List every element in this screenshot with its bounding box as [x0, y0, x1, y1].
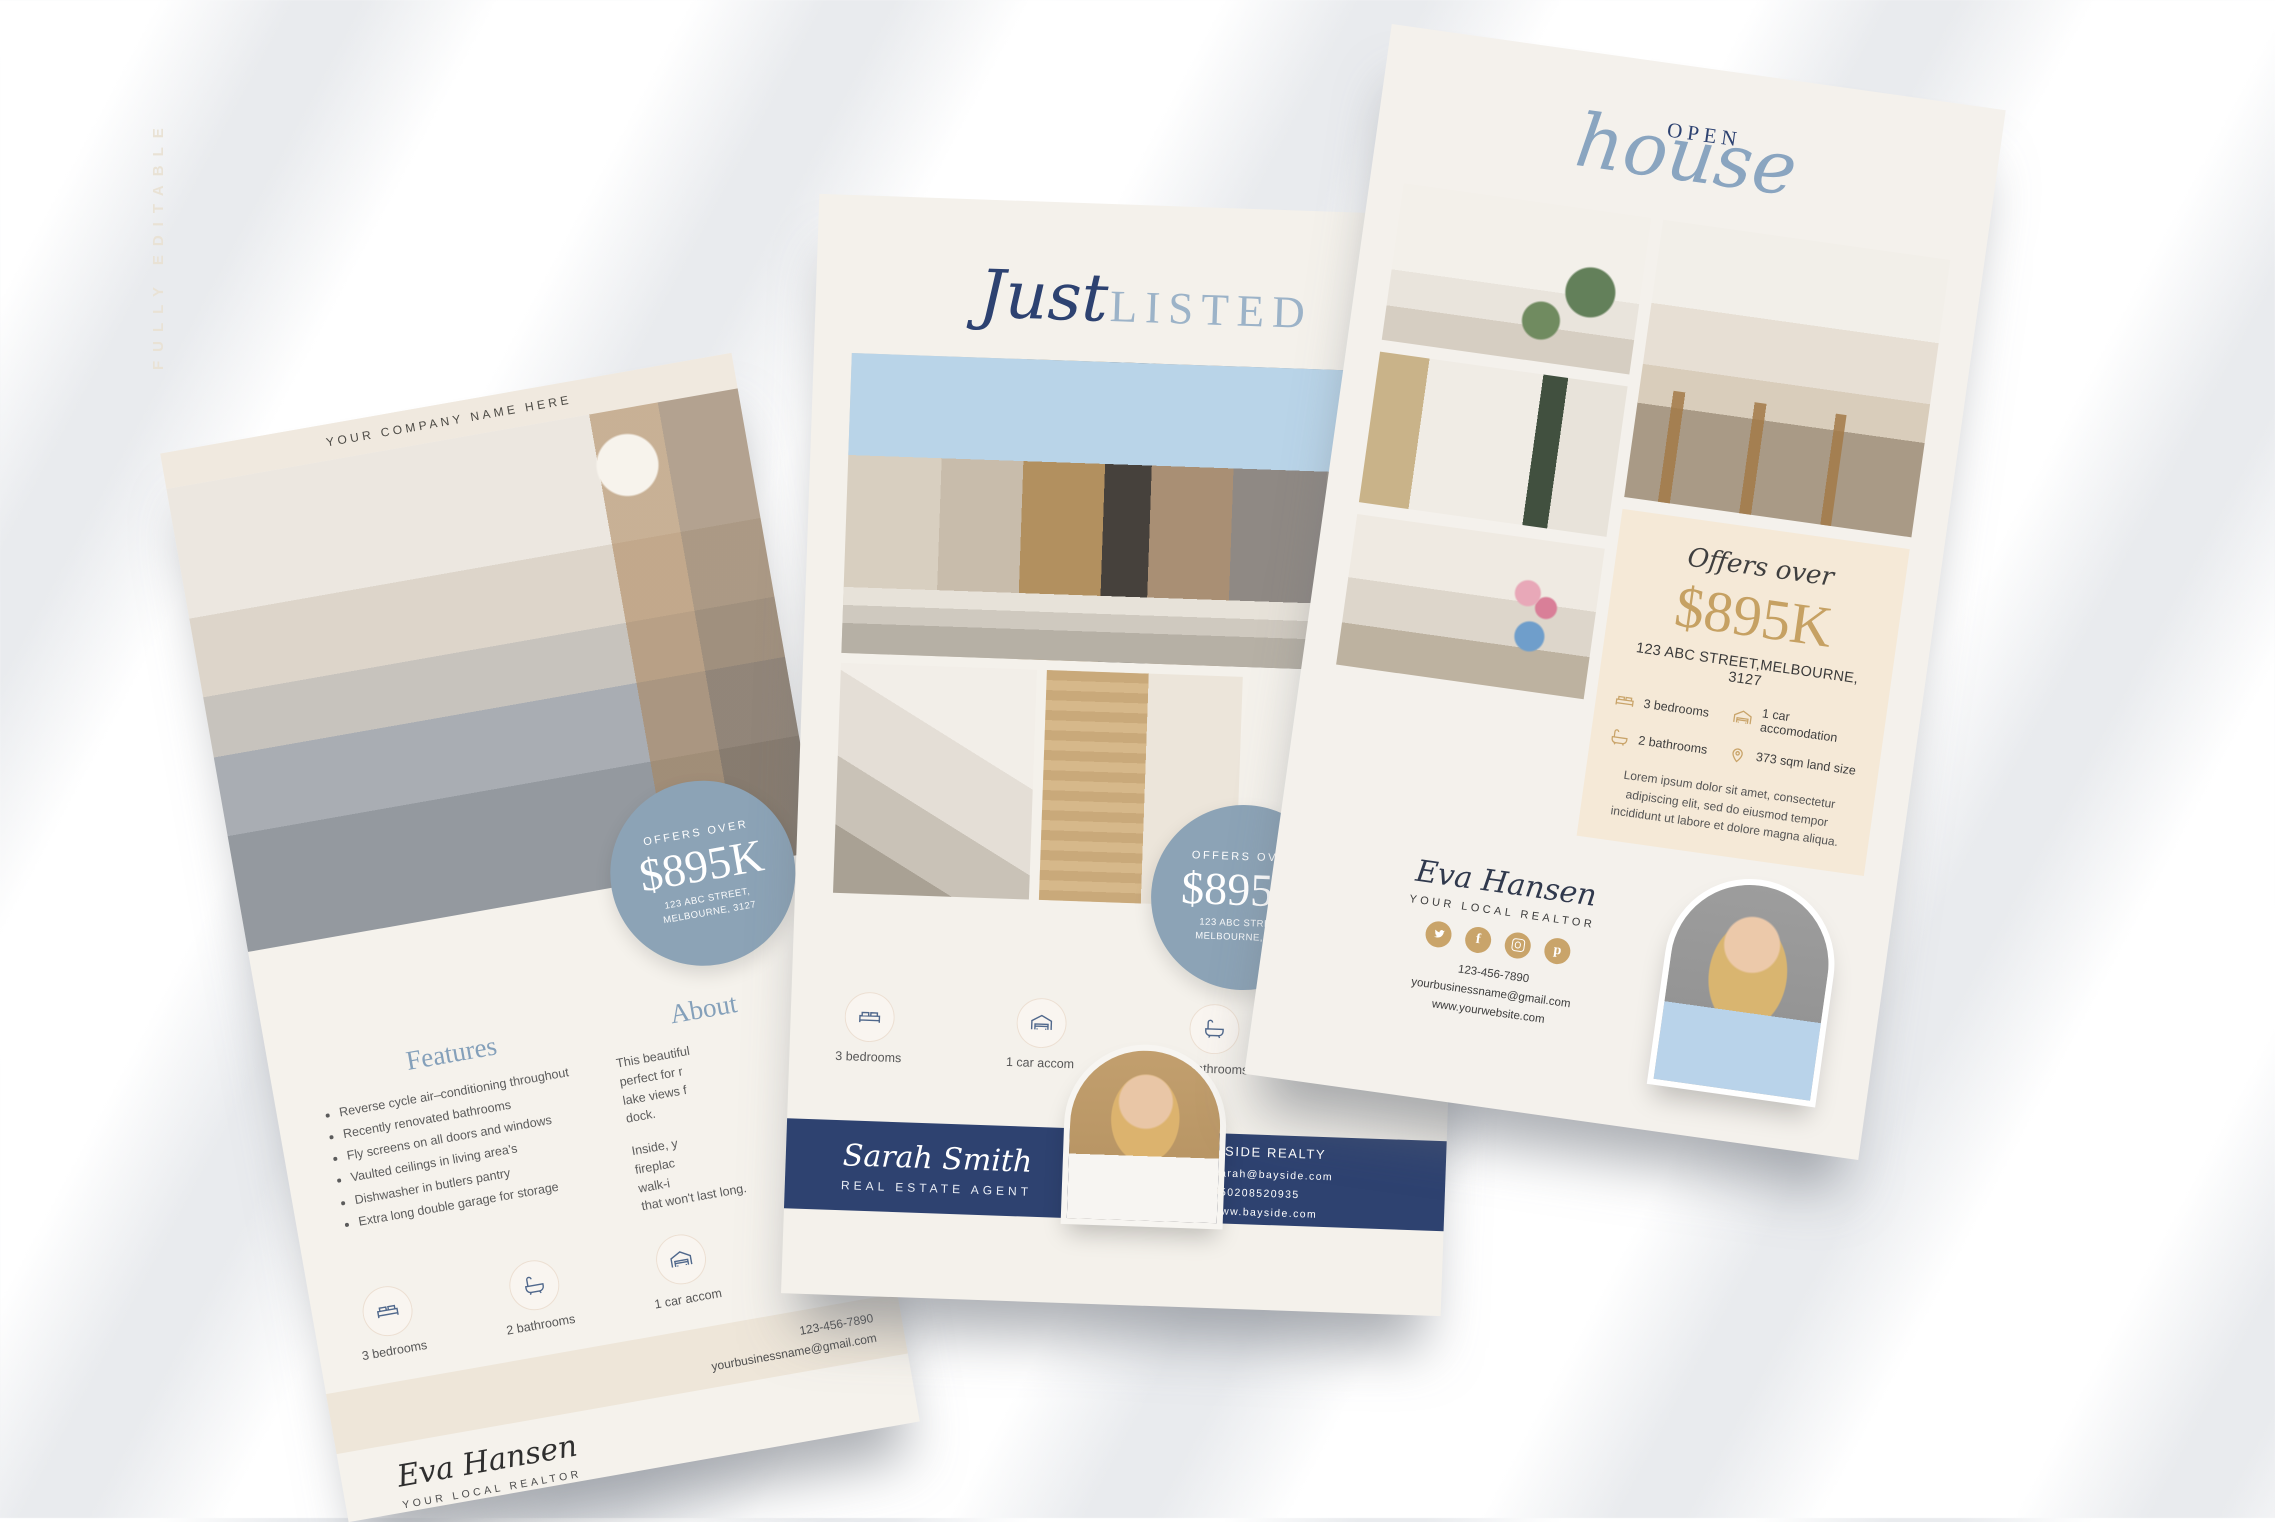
instagram-icon [1503, 931, 1532, 960]
facebook-icon: f [1463, 925, 1492, 954]
kitchen-photo [1624, 220, 1950, 538]
map-pin-icon [1725, 742, 1750, 767]
staircase-living-photo [833, 663, 1037, 900]
stage: FULLY EDITABLE YOUR COMPANY NAME HERE OF… [0, 0, 2275, 1518]
company-name: BAYSIDE REALTY [1195, 1143, 1430, 1166]
detail-bathrooms: 2 bathrooms [1607, 725, 1722, 762]
photo-grid: Offers over $895K 123 ABC STREET,MELBOUR… [1317, 183, 1950, 876]
detail-bathrooms: 2 bathrooms [495, 1255, 576, 1338]
company-website: www.bayside.com [1212, 1202, 1318, 1225]
agent-portrait-photo [1067, 1048, 1223, 1223]
bed-icon [1612, 689, 1637, 714]
twitter-icon [1424, 919, 1453, 948]
agent-name: Sarah Smith [842, 1138, 1033, 1180]
bath-icon [1189, 1003, 1241, 1055]
detail-bedrooms: 3 bedrooms [1612, 686, 1728, 729]
bedroom-photo [1382, 183, 1652, 374]
agent-block: Sarah Smith REAL ESTATE AGENT [784, 1118, 1091, 1219]
watermark-text: FULLY EDITABLE [150, 40, 167, 370]
detail-bedrooms: 3 bedrooms [351, 1281, 429, 1363]
detail-car: 1 car accom [643, 1229, 723, 1312]
agent-signature-block: Eva Hansen YOUR LOCAL REALTOR f p 123-45… [1323, 822, 1675, 1045]
sofa-flowers-photo [1336, 514, 1605, 699]
features-list: Reverse cycle air–conditioning throughou… [322, 1059, 613, 1233]
pinterest-icon: p [1543, 936, 1572, 965]
bed-icon [359, 1282, 417, 1340]
detail-car: 1 car accom [1006, 997, 1077, 1071]
title-just: Just [977, 255, 1109, 336]
features-section: Features Reverse cycle air–conditioning … [314, 1015, 619, 1268]
company-block: BAYSIDE REALTY sarah@bayside.com 0502085… [1193, 1133, 1447, 1232]
detail-land: 373 sqm land size [1725, 742, 1862, 783]
mockup-background: { "background": { "watermark": "FULLY ED… [0, 0, 2275, 1518]
garage-icon [1730, 705, 1755, 730]
bath-icon [505, 1256, 563, 1314]
agent-portrait-photo [1654, 874, 1839, 1100]
agent-title: REAL ESTATE AGENT [841, 1178, 1033, 1199]
bed-icon [844, 991, 896, 1043]
detail-car: 1 car accomodation [1730, 702, 1868, 749]
flyer-right: OPEN house Offers over $895K 123 ABC STR… [1244, 24, 2005, 1160]
offer-box: Offers over $895K 123 ABC STREET,MELBOUR… [1577, 509, 1910, 876]
title-listed: LISTED [1109, 281, 1314, 338]
garage-icon [1016, 997, 1068, 1049]
garage-icon [652, 1230, 710, 1288]
shelves-living-photo [1359, 352, 1628, 537]
title-house: house [1571, 97, 1802, 213]
bath-icon [1607, 725, 1632, 750]
detail-bedrooms: 3 bedrooms [835, 991, 903, 1065]
